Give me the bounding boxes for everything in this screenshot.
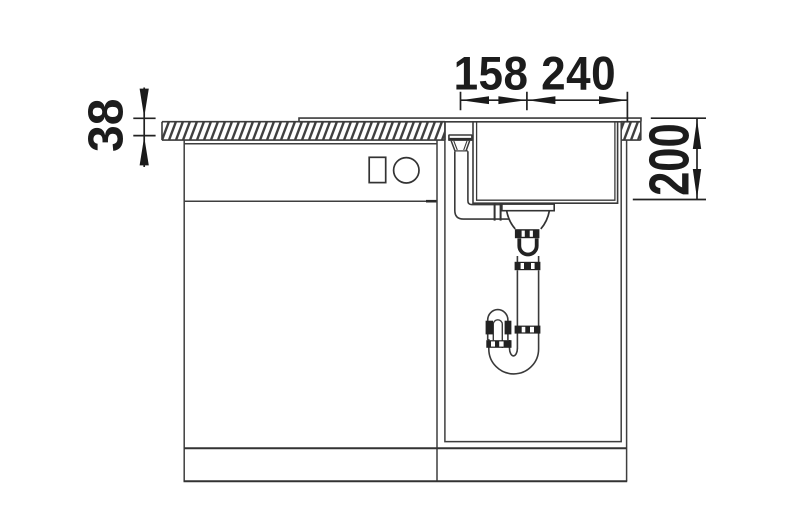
svg-text:38: 38 (79, 99, 133, 152)
svg-text:158 240: 158 240 (454, 47, 616, 100)
svg-text:200: 200 (638, 123, 701, 196)
